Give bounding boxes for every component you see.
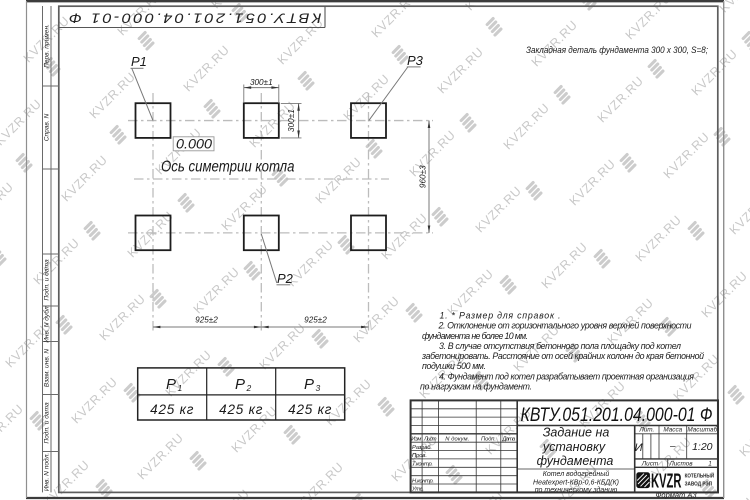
svg-text:Разраб.: Разраб.: [412, 445, 432, 451]
svg-text:Формат А3: Формат А3: [655, 490, 697, 499]
svg-text:установку: установку: [542, 440, 606, 454]
svg-text:3: 3: [316, 383, 321, 393]
svg-text:Справ. N: Справ. N: [44, 113, 51, 141]
svg-text:КОТЕЛЬНЫЙ: КОТЕЛЬНЫЙ: [685, 472, 715, 480]
svg-text:Задание на: Задание на: [543, 426, 610, 440]
svg-text:N докум.: N докум.: [445, 437, 469, 443]
svg-text:Взам. инв. N: Взам. инв. N: [44, 349, 51, 388]
svg-text:300±1: 300±1: [287, 109, 296, 132]
svg-text:фундамента не более 10 мм.: фундамента не более 10 мм.: [422, 331, 528, 341]
svg-text:925±2: 925±2: [304, 316, 327, 325]
svg-text:2: 2: [246, 383, 252, 393]
svg-text:–: –: [669, 441, 676, 452]
svg-text:P1: P1: [131, 54, 147, 69]
svg-text:Н.контр.: Н.контр.: [412, 478, 434, 484]
svg-text:фундамента: фундамента: [537, 454, 614, 468]
svg-text:КВТУ.051.201.04.000-01 Ф: КВТУ.051.201.04.000-01 Ф: [521, 405, 713, 426]
svg-text:P: P: [235, 376, 245, 393]
svg-text:Котел водогрейный: Котел водогрейный: [543, 470, 610, 478]
svg-text:подушки 500 мм.: подушки 500 мм.: [422, 361, 486, 371]
svg-text:1: 1: [178, 383, 183, 393]
svg-text:Подп. и дата: Подп. и дата: [43, 402, 51, 444]
svg-text:Инв. N дубл.: Инв. N дубл.: [43, 304, 51, 342]
svg-text:Инв. N подл.: Инв. N подл.: [43, 453, 51, 492]
svg-text:Подп.: Подп.: [481, 437, 496, 443]
svg-text:KVZR: KVZR: [651, 469, 682, 492]
svg-text:Закладная деталь фундамента 3: Закладная деталь фундамента 300 х 300, S…: [526, 45, 708, 55]
svg-text:ЗАВОД РЭП: ЗАВОД РЭП: [685, 481, 713, 487]
svg-text:P: P: [304, 376, 314, 393]
svg-text:И: И: [635, 442, 643, 454]
svg-text:Ось симетрии котла: Ось симетрии котла: [161, 159, 295, 176]
svg-text:3. В случае отсутствия бетонн: 3. В случае отсутствия бетонного пола пл…: [439, 341, 681, 351]
svg-text:Heatexpert-КВр-0,6-КБД(К): Heatexpert-КВр-0,6-КБД(К): [533, 480, 619, 487]
svg-text:960±3: 960±3: [418, 165, 427, 188]
svg-text:1. * Размер для справок .: 1. * Размер для справок .: [440, 311, 561, 321]
svg-text:1: 1: [708, 460, 712, 467]
svg-text:425 кг: 425 кг: [219, 402, 263, 417]
svg-text:Лит.: Лит.: [638, 427, 654, 434]
svg-text:Пров.: Пров.: [412, 453, 427, 459]
svg-text:Т.контр.: Т.контр.: [412, 462, 433, 468]
svg-text:Перв. примен.: Перв. примен.: [44, 24, 51, 68]
svg-text:забетонировать. Расстояние от: забетонировать. Расстояние от осей крайн…: [421, 351, 704, 361]
svg-text:Масштаб: Масштаб: [687, 426, 717, 434]
svg-text:P: P: [166, 376, 176, 393]
svg-text:1:20: 1:20: [692, 441, 713, 453]
svg-text:по нагрузкам на фундамент.: по нагрузкам на фундамент.: [420, 381, 532, 391]
svg-text:Утв.: Утв.: [411, 487, 424, 493]
svg-text:Лист: Лист: [423, 437, 437, 443]
svg-text:425 кг: 425 кг: [150, 402, 194, 417]
svg-text:425 кг: 425 кг: [288, 402, 332, 417]
svg-text:300±1: 300±1: [250, 78, 273, 87]
svg-text:4. Фундамент под котел разраб: 4. Фундамент под котел разрабатывает про…: [439, 371, 694, 381]
svg-text:по техническому зданию: по техническому зданию: [535, 486, 618, 494]
svg-text:Подп. и дата: Подп. и дата: [43, 259, 51, 301]
svg-text:0.000: 0.000: [176, 136, 212, 152]
svg-text:КВТУ.051.201.04.000-01 Ф: КВТУ.051.201.04.000-01 Ф: [67, 10, 322, 25]
svg-text:925±2: 925±2: [195, 316, 218, 325]
svg-text:Изм: Изм: [411, 437, 421, 443]
svg-text:2. Отклонение от горизонтальн: 2. Отклонение от горизонтального уровня …: [438, 321, 692, 331]
svg-text:Дата: Дата: [501, 437, 516, 443]
svg-text:Листов: Листов: [668, 460, 693, 467]
svg-text:Масса: Масса: [663, 427, 682, 434]
svg-text:P2: P2: [277, 271, 294, 286]
svg-text:P3: P3: [407, 53, 424, 68]
svg-text:Лист: Лист: [641, 460, 659, 467]
